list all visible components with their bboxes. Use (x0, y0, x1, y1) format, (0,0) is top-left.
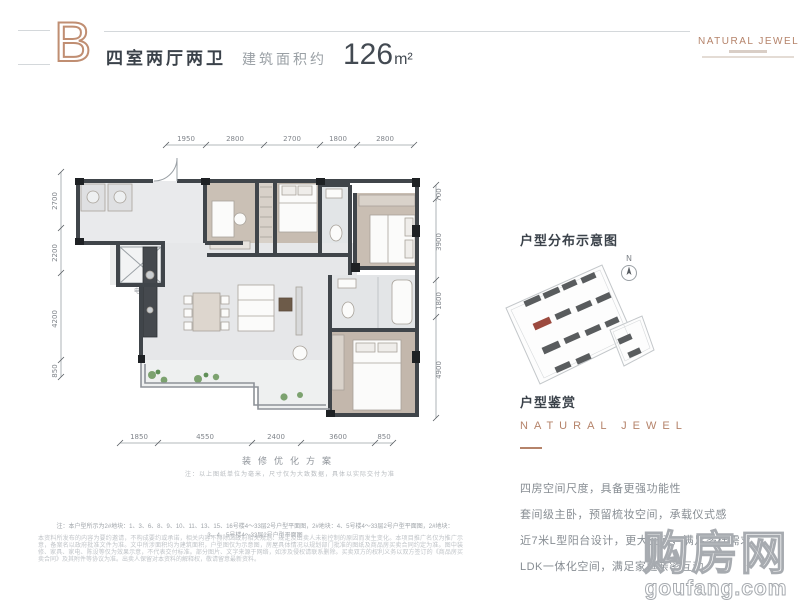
header-rule (104, 31, 690, 32)
svg-text:850: 850 (377, 433, 390, 441)
brand-line: NATURAL JEWEL (520, 420, 688, 432)
svg-text:4200: 4200 (51, 310, 59, 328)
svg-text:1950: 1950 (177, 135, 195, 143)
svg-text:3600: 3600 (329, 433, 347, 441)
brand-tagline-bar (729, 50, 767, 53)
header-rule-left-bottom (18, 64, 50, 65)
brand-name-text: NATURAL JEWEL (698, 36, 798, 47)
svg-text:1800: 1800 (329, 135, 347, 143)
brand-logo: NATURAL JEWEL (698, 36, 798, 58)
plan-caption-note: 注：以上图纸单位为毫米，尺寸仅为大致数据，具体以实际交付为准 (110, 469, 470, 478)
svg-text:4550: 4550 (196, 433, 214, 441)
unit-type-title: 四室两厅两卫 (106, 44, 226, 69)
footer-disclaimer: 本资料所发布的内容为要约邀请，不构成要约或承诺，相关内容不排除因政府相关规划、规… (38, 536, 463, 564)
svg-text:3900: 3900 (435, 233, 443, 251)
svg-text:2400: 2400 (267, 433, 285, 441)
svg-text:700: 700 (435, 188, 443, 201)
brand-subline-bar (702, 56, 794, 58)
svg-text:2800: 2800 (226, 135, 244, 143)
header-rule-left-top (18, 30, 50, 31)
feature-item: 四房空间尺度，具备更强功能性 (520, 476, 752, 502)
plan-caption: 装修优化方案 (130, 454, 450, 467)
svg-text:850: 850 (51, 364, 59, 377)
area-group: 126 m² (343, 38, 413, 72)
watermark-cn: 购房网 (632, 530, 800, 576)
watermark-en: goufang.com (632, 578, 800, 599)
watermark: 购房网 goufang.com (632, 530, 800, 599)
svg-text:2200: 2200 (51, 244, 59, 262)
svg-text:2700: 2700 (51, 192, 59, 210)
svg-text:2800: 2800 (376, 135, 394, 143)
appreciation-title: 户型鉴赏 (520, 392, 576, 411)
entry-door (154, 158, 177, 181)
area-value: 126 (343, 38, 393, 72)
floorplan-page: B 四室两厅两卫 建筑面积约 126 m² NATURAL JEWEL (0, 0, 800, 600)
feature-item: 套间级主卧，预留梳妆空间，承载仪式感 (520, 502, 752, 528)
header-title-row: 四室两厅两卫 建筑面积约 126 m² (106, 38, 413, 72)
svg-text:1850: 1850 (130, 433, 148, 441)
svg-text:1800: 1800 (435, 292, 443, 310)
unit-letter: B (54, 14, 91, 70)
area-label: 建筑面积约 (242, 49, 327, 69)
distribution-title: 户型分布示意图 (520, 230, 618, 249)
floorplan-drawing: 电梯 (48, 125, 448, 470)
brand-dash (520, 447, 542, 449)
area-unit: m² (394, 51, 413, 69)
siteplan-diagram (500, 258, 658, 396)
svg-text:4900: 4900 (435, 361, 443, 379)
svg-text:2700: 2700 (283, 135, 301, 143)
